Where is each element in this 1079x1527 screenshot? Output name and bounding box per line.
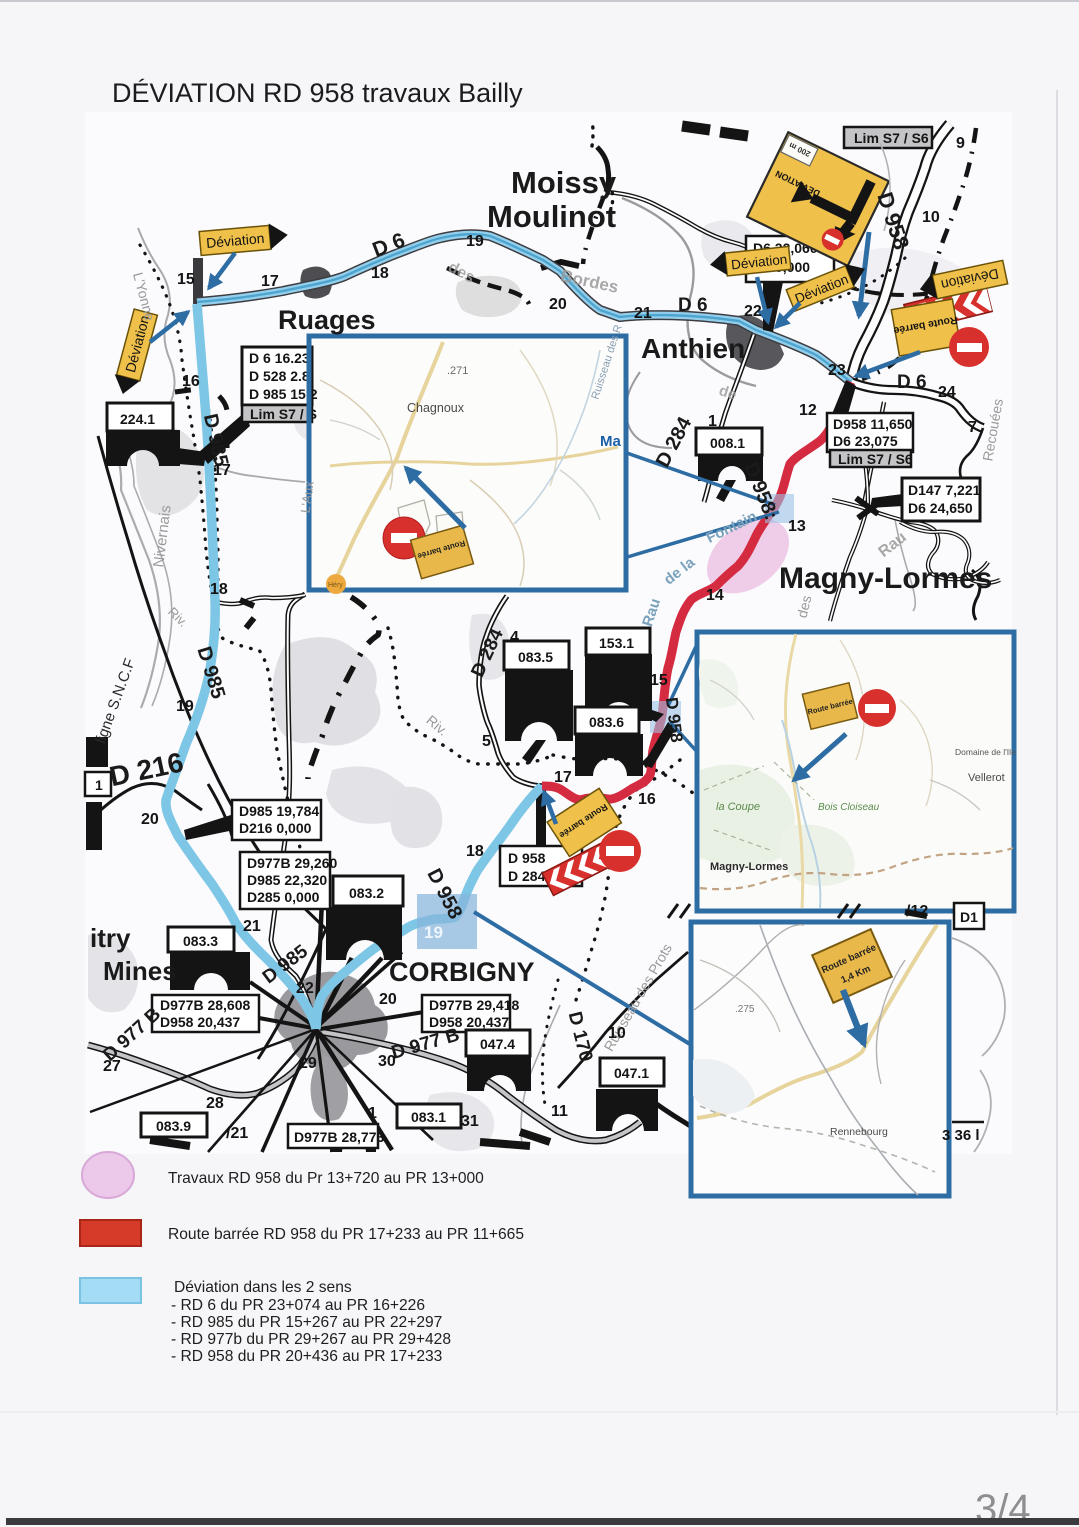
svg-text:047.4: 047.4	[480, 1036, 515, 1052]
svg-text:083.2: 083.2	[349, 885, 384, 901]
svg-text:D 6: D 6	[678, 295, 708, 316]
svg-text:Vellerot: Vellerot	[968, 772, 1005, 784]
svg-text:24: 24	[938, 384, 956, 401]
svg-text:- RD 985 du PR 15+267 au PR 22: - RD 985 du PR 15+267 au PR 22+297	[171, 1314, 442, 1331]
svg-text:15: 15	[177, 271, 195, 288]
svg-text:224.1: 224.1	[120, 411, 155, 427]
svg-text:20: 20	[549, 296, 567, 313]
svg-text:Moulinot: Moulinot	[487, 199, 616, 234]
svg-text:22: 22	[296, 980, 314, 997]
svg-text:CORBIGNY: CORBIGNY	[389, 957, 535, 987]
svg-text:.271: .271	[447, 365, 468, 377]
svg-text:Magny-Lormes: Magny-Lormes	[779, 562, 992, 595]
svg-text:7: 7	[968, 419, 977, 436]
svg-text:15: 15	[650, 672, 668, 689]
svg-text:30: 30	[378, 1053, 396, 1070]
svg-text:D285 0,000: D285 0,000	[247, 889, 320, 905]
svg-text:Lim S7 / S6: Lim S7 / S6	[854, 130, 929, 146]
svg-text:D985 19,784: D985 19,784	[239, 803, 319, 819]
svg-text:29: 29	[299, 1055, 317, 1072]
svg-text:Travaux RD 958 du Pr 13+720 au: Travaux RD 958 du Pr 13+720 au PR 13+000	[168, 1170, 484, 1187]
svg-text:D147 7,221: D147 7,221	[908, 482, 981, 498]
svg-text:18: 18	[371, 265, 389, 282]
svg-text:18: 18	[210, 581, 228, 598]
svg-text:Lim S7 / S6: Lim S7 / S6	[838, 451, 913, 467]
svg-text:Mines: Mines	[103, 956, 177, 986]
svg-text:Domaine de l'Ile: Domaine de l'Ile	[955, 747, 1016, 757]
svg-text:D6 23,075: D6 23,075	[833, 433, 898, 449]
svg-text:047.1: 047.1	[614, 1065, 649, 1081]
svg-text:20: 20	[379, 991, 397, 1008]
svg-text:083.5: 083.5	[518, 649, 553, 665]
svg-text:Moissy: Moissy	[511, 165, 617, 200]
svg-text:D977B 28,608: D977B 28,608	[160, 997, 251, 1013]
svg-text:D 528 2.8: D 528 2.8	[249, 368, 310, 384]
svg-text:22: 22	[744, 303, 762, 320]
svg-text:10: 10	[922, 209, 940, 226]
svg-text:17: 17	[261, 273, 279, 290]
svg-text:Bois Cloiseau: Bois Cloiseau	[818, 802, 880, 813]
svg-text:19: 19	[176, 698, 194, 715]
svg-text:Anthien: Anthien	[641, 333, 745, 364]
svg-text:/12: /12	[906, 903, 928, 920]
svg-text:19: 19	[466, 233, 484, 250]
svg-text:9: 9	[956, 135, 965, 152]
svg-text:083.1: 083.1	[411, 1109, 446, 1125]
svg-text:Route barrée RD 958 du PR 17+2: Route barrée RD 958 du PR 17+233 au PR 1…	[168, 1226, 524, 1243]
svg-text:1: 1	[95, 777, 103, 793]
svg-text:D958 20,437: D958 20,437	[160, 1014, 240, 1030]
svg-text:12: 12	[799, 402, 817, 419]
svg-text:D977B 29,418: D977B 29,418	[429, 997, 520, 1013]
svg-text:27: 27	[103, 1058, 121, 1075]
svg-text:la Coupe: la Coupe	[716, 801, 760, 813]
svg-text:D 6: D 6	[897, 372, 927, 393]
svg-text:- RD 977b du PR 29+267 au PR 2: - RD 977b du PR 29+267 au PR 29+428	[171, 1331, 451, 1348]
svg-text:23: 23	[828, 362, 846, 379]
svg-text:1: 1	[708, 413, 717, 430]
svg-text:17: 17	[554, 769, 572, 786]
svg-text:16: 16	[638, 791, 656, 808]
svg-text:D958 20,437: D958 20,437	[429, 1014, 509, 1030]
svg-text:21: 21	[634, 305, 652, 322]
svg-text:20: 20	[141, 811, 159, 828]
svg-text:D985 22,320: D985 22,320	[247, 872, 327, 888]
svg-text:10: 10	[608, 1025, 626, 1042]
svg-text:19: 19	[424, 923, 443, 942]
svg-text:Déviation dans les 2 sens: Déviation dans les 2 sens	[174, 1279, 352, 1296]
svg-text:itry: itry	[90, 923, 131, 953]
svg-text:14: 14	[706, 587, 724, 604]
svg-text:083.3: 083.3	[183, 933, 218, 949]
svg-text:Ma: Ma	[600, 433, 621, 450]
svg-text:3 36 l: 3 36 l	[942, 1127, 980, 1144]
svg-text:D 6 16.23: D 6 16.23	[249, 350, 310, 366]
svg-text:Héry: Héry	[328, 582, 343, 589]
svg-text:Chagnoux: Chagnoux	[407, 401, 465, 415]
svg-text:D6 24,650: D6 24,650	[908, 500, 973, 516]
svg-text:28: 28	[206, 1095, 224, 1112]
svg-text:D216 0,000: D216 0,000	[239, 820, 312, 836]
svg-text:18: 18	[466, 843, 484, 860]
svg-text:16: 16	[182, 373, 200, 390]
svg-text:Ruages: Ruages	[278, 305, 376, 335]
svg-text:1: 1	[368, 1105, 377, 1122]
svg-text:13: 13	[788, 518, 806, 535]
svg-text:/21: /21	[226, 1125, 248, 1142]
svg-text:DÉVIATION RD 958 travaux Baill: DÉVIATION RD 958 travaux Bailly	[112, 78, 523, 108]
svg-text:- RD 6 du PR 23+074 au PR 16+2: - RD 6 du PR 23+074 au PR 16+226	[171, 1297, 425, 1314]
svg-text:Rennebourg: Rennebourg	[830, 1126, 888, 1138]
svg-text:31: 31	[461, 1113, 479, 1130]
svg-text:153.1: 153.1	[599, 635, 634, 651]
svg-text:17: 17	[213, 462, 231, 479]
svg-text:008.1: 008.1	[710, 435, 745, 451]
svg-text:D977B 28,773: D977B 28,773	[294, 1129, 385, 1145]
svg-text:11: 11	[551, 1103, 568, 1120]
svg-text:D958 11,650: D958 11,650	[833, 416, 913, 432]
svg-text:Magny-Lormes: Magny-Lormes	[710, 861, 788, 873]
svg-text:D977B 29,260: D977B 29,260	[247, 855, 338, 871]
svg-text:4: 4	[510, 629, 519, 646]
svg-text:D 958: D 958	[508, 850, 546, 866]
svg-text:21: 21	[243, 918, 261, 935]
svg-text:.275: .275	[735, 1004, 755, 1015]
svg-text:083.6: 083.6	[589, 714, 624, 730]
svg-text:5: 5	[482, 733, 491, 750]
svg-text:D1: D1	[960, 909, 978, 925]
svg-text:083.9: 083.9	[156, 1118, 191, 1134]
svg-text:- RD 958 du PR 20+436 au PR 17: - RD 958 du PR 20+436 au PR 17+233	[171, 1348, 442, 1365]
